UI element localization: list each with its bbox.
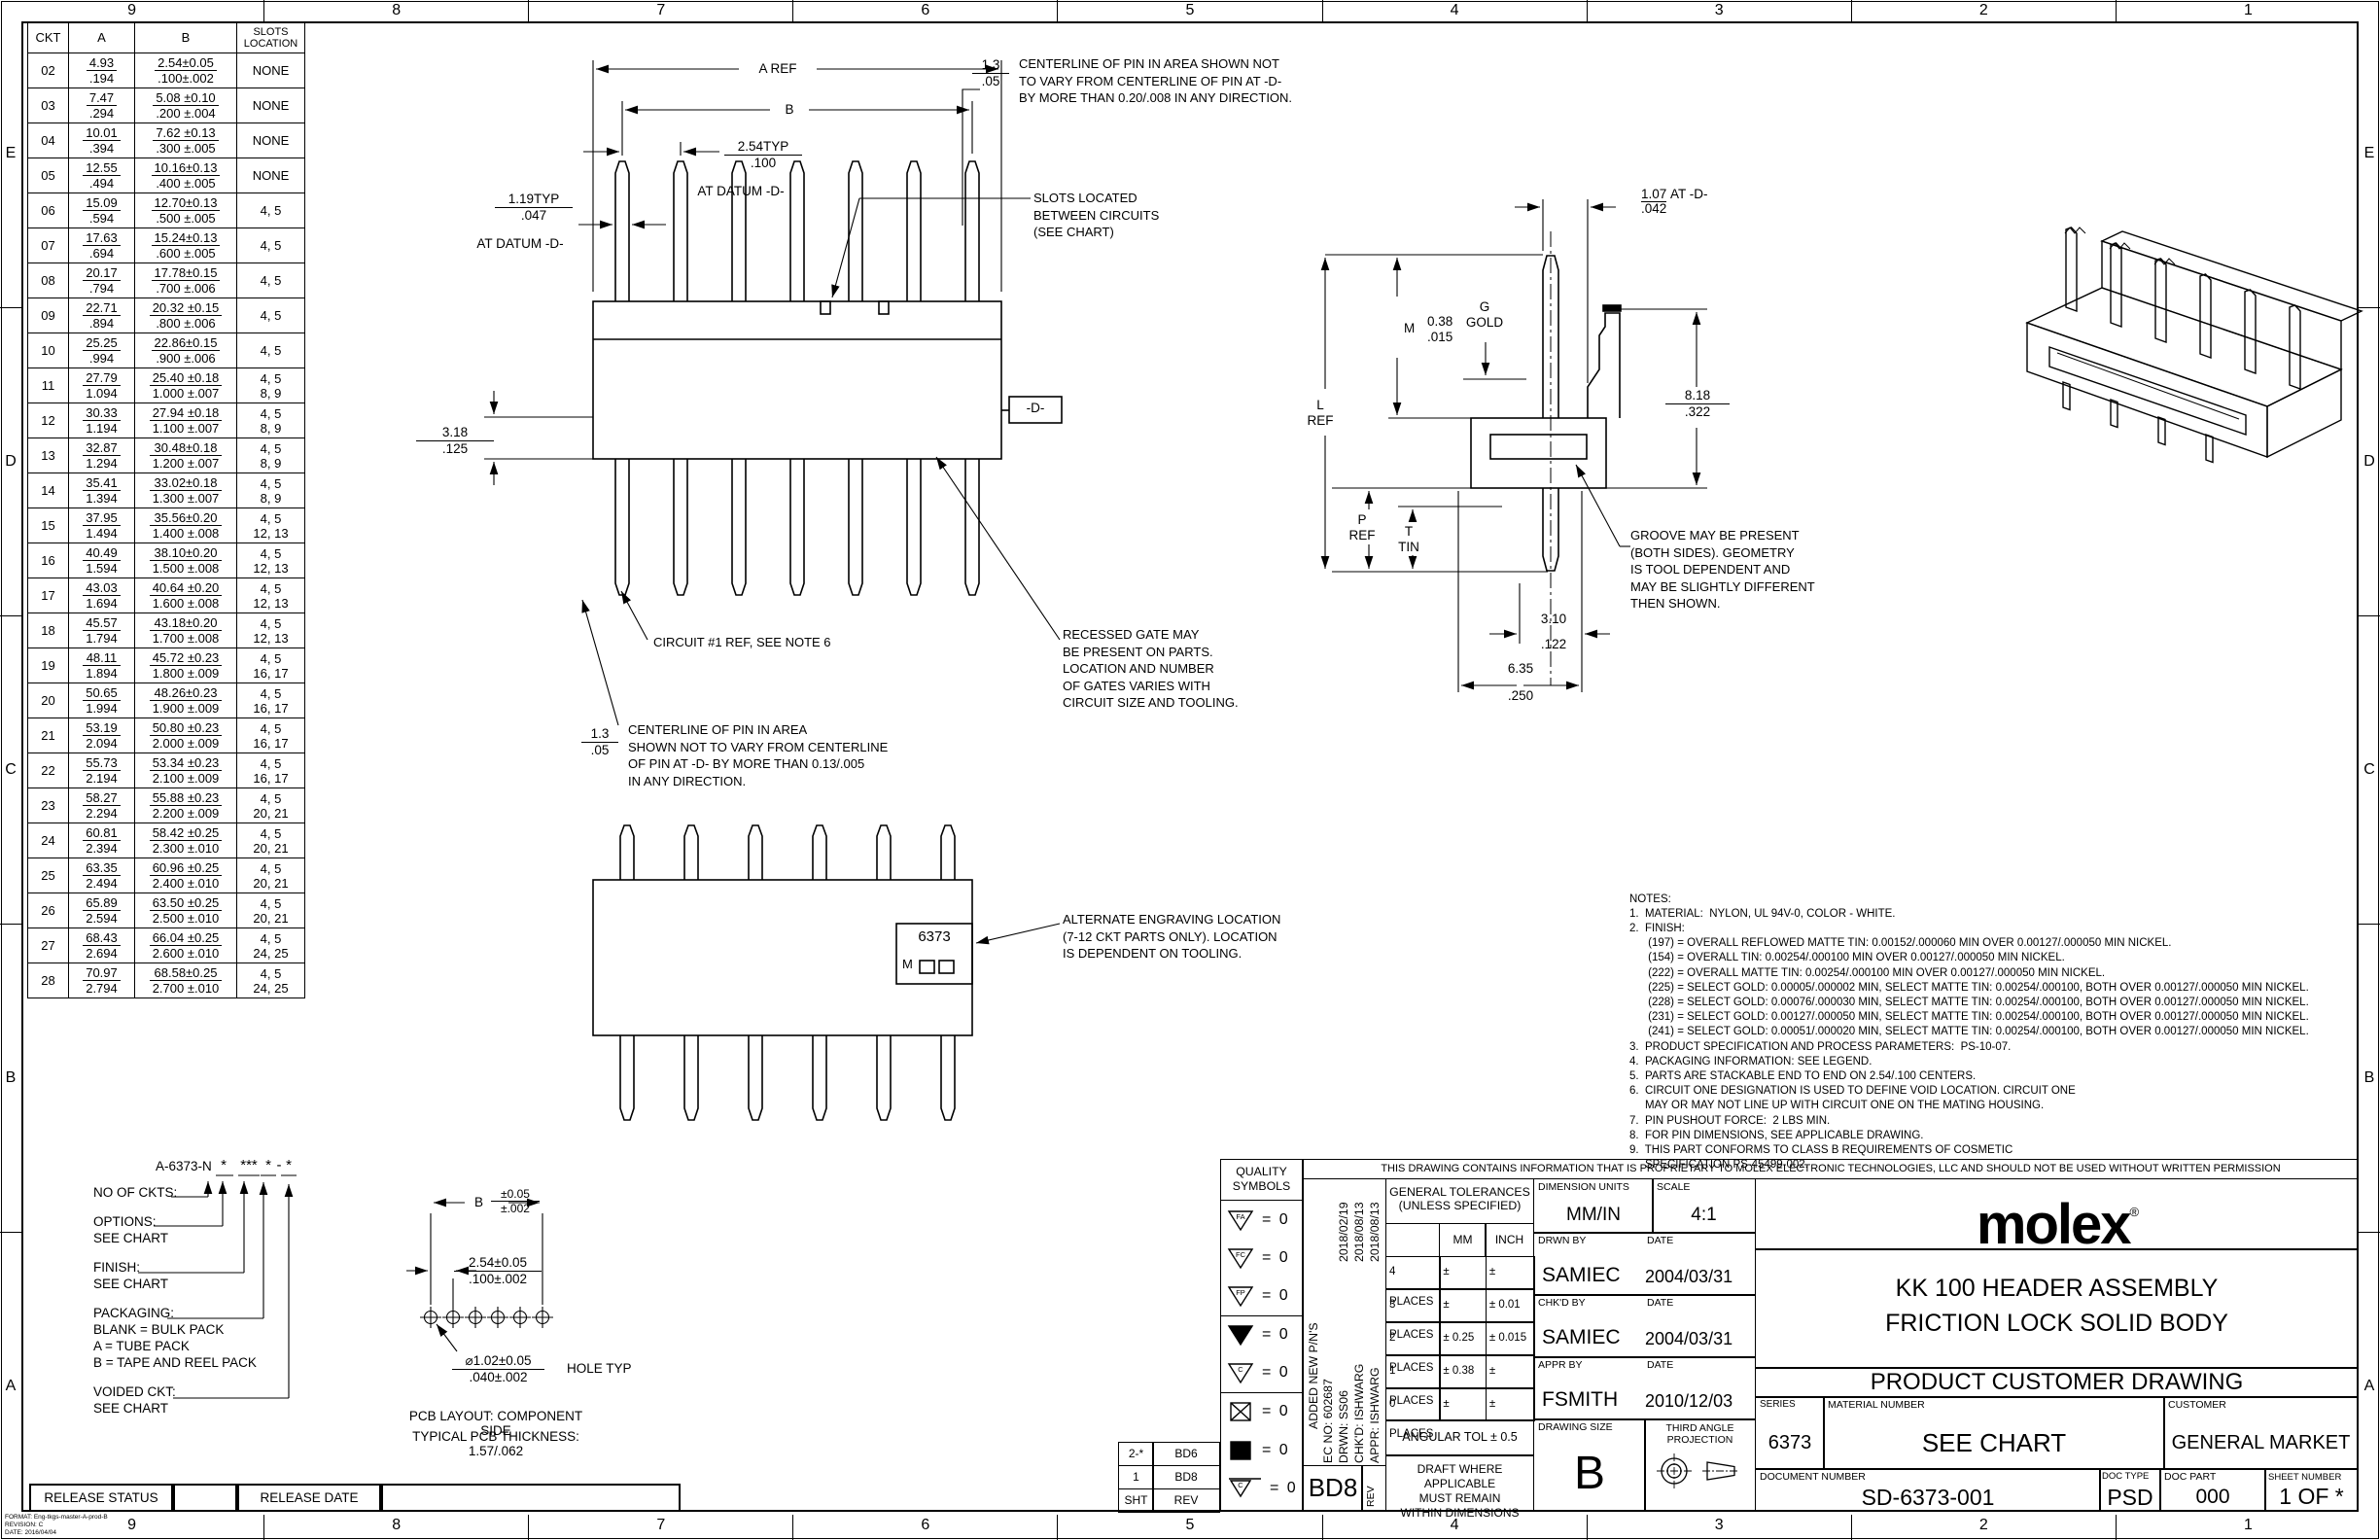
sheet-number-cell: SHEET NUMBER 1 OF * xyxy=(2264,1468,2359,1512)
tolerance-row: 3 PLACES ± ± 0.01 xyxy=(1385,1289,1535,1322)
material-number-cell: MATERIAL NUMBER SEE CHART xyxy=(1823,1396,2165,1470)
doc-part-value: 000 xyxy=(2160,1486,2265,1509)
rev-sht-header: SHT xyxy=(1118,1488,1154,1513)
tolerance-row: 4 PLACES ± ± xyxy=(1385,1256,1535,1289)
tol-col-inch: INCH xyxy=(1485,1223,1534,1257)
pcb-dim-pitch: 2.54±0.05 .100±.002 xyxy=(454,1255,542,1287)
projection-cell: THIRD ANGLE PROJECTION xyxy=(1644,1418,1756,1512)
dim-l-ref: L REF xyxy=(1295,398,1346,429)
quality-header: QUALITY SYMBOLS xyxy=(1221,1160,1302,1201)
release-date-cell: RELEASE DATE xyxy=(237,1484,381,1512)
legend-star-1: * xyxy=(216,1157,231,1173)
release-status-cell: RELEASE STATUS xyxy=(29,1484,173,1512)
drwn-by-label: DRWN BY xyxy=(1538,1235,1586,1246)
dim-tail-in: .125 xyxy=(416,441,494,457)
quality-row: FA = 0 xyxy=(1221,1201,1302,1240)
ec-drwn: DRWN: SS06 xyxy=(1337,1280,1350,1463)
marking-6373: 6373 xyxy=(898,928,970,945)
legend-item-sub: SEE CHART xyxy=(93,1276,317,1292)
quality-row: FC = 0 xyxy=(1221,1240,1302,1278)
quality-row: = 0 xyxy=(1221,1316,1302,1355)
note-line: (225) = SELECT GOLD: 0.00005/.000002 MIN… xyxy=(1629,981,2309,996)
legend-items: NO OF CKTS: OPTIONS: SEE CHART FINISH: S… xyxy=(93,1184,317,1429)
doc-type-label: DOC TYPE xyxy=(2102,1471,2149,1482)
c-triangle-bar-icon: C xyxy=(1226,1476,1263,1501)
ec-number: EC NO: 602687 xyxy=(1321,1280,1335,1463)
legend-item: FINISH: SEE CHART xyxy=(93,1259,317,1292)
dim-height-mm: 8.18 xyxy=(1665,388,1730,404)
legend-item-sub: SEE CHART xyxy=(93,1230,317,1246)
sheet-number-value: 1 OF * xyxy=(2266,1484,2357,1510)
drwn-date-value: 2004/03/31 xyxy=(1645,1267,1732,1287)
dim-slot-in: .122 xyxy=(1523,637,1584,651)
chkd-by-value: SAMIEC xyxy=(1542,1326,1621,1349)
tol-inch: ± 0.015 xyxy=(1486,1322,1535,1355)
rev-sht-cell: 2-* xyxy=(1118,1442,1154,1466)
tolerance-row: 0 PLACES ± ± xyxy=(1385,1388,1535,1421)
rev-rev-cell: BD6 xyxy=(1152,1442,1220,1466)
note-line: MAY OR MAY NOT LINE UP WITH CIRCUIT ONE … xyxy=(1629,1099,2309,1113)
note-line: 4. PACKAGING INFORMATION: SEE LEGEND. xyxy=(1629,1055,2309,1069)
customer-label: CUSTOMER xyxy=(2168,1399,2226,1411)
pcb-dim-b: B xyxy=(474,1195,483,1209)
tolerance-table: 4 PLACES ± ± 3 PLACES ± ± 0.01 2 PLACES … xyxy=(1385,1256,1535,1421)
document-number-value: SD-6373-001 xyxy=(1756,1485,2100,1511)
tolerance-header-2: (UNLESS SPECIFIED) xyxy=(1386,1199,1533,1212)
material-number-label: MATERIAL NUMBER xyxy=(1828,1399,1925,1411)
quality-row: = 0 xyxy=(1221,1393,1302,1432)
hole-symbols xyxy=(420,1307,553,1328)
tol-places: 2 PLACES xyxy=(1385,1322,1441,1355)
legend-item-label: NO OF CKTS: xyxy=(93,1184,317,1201)
dim-pitch-in: .100 xyxy=(724,156,802,171)
pcb-dim-hole: ⌀1.02±0.05 .040±.002 xyxy=(452,1353,544,1385)
legend-item: PACKAGING: BLANK = BULK PACK A = TUBE PA… xyxy=(93,1305,317,1371)
dim-pin-width-in: .047 xyxy=(495,208,573,224)
sheet-number-label: SHEET NUMBER xyxy=(2268,1472,2341,1483)
note-bottom-in: .05 xyxy=(581,743,618,758)
pcb-b-in: ±.002 xyxy=(491,1202,540,1215)
note-groove: GROOVE MAY BE PRESENT (BOTH SIDES). GEOM… xyxy=(1630,527,1835,612)
appr-date-label: DATE xyxy=(1647,1359,1673,1371)
document-number-label: DOCUMENT NUMBER xyxy=(1760,1471,1866,1483)
projection-label: THIRD ANGLE PROJECTION xyxy=(1645,1419,1755,1446)
ec-date-3: 2018/08/13 xyxy=(1368,1179,1382,1262)
drawing-size-value: B xyxy=(1534,1447,1645,1500)
front-view xyxy=(593,161,1062,595)
quality-value: = 0 xyxy=(1262,1211,1290,1229)
dim-base-mm: 6.35 xyxy=(1490,661,1551,676)
note-line: (228) = SELECT GOLD: 0.00076/.000030 MIN… xyxy=(1629,996,2309,1010)
rev-rev-header: REV xyxy=(1152,1488,1220,1513)
quality-value: = 0 xyxy=(1270,1480,1298,1497)
note-circuit1: CIRCUIT #1 REF, SEE NOTE 6 xyxy=(653,634,867,651)
tolerance-row: 2 PLACES ± 0.25 ± 0.015 xyxy=(1385,1322,1535,1355)
dim-tail: 3.18 .125 xyxy=(416,425,494,457)
proprietary-notice: THIS DRAWING CONTAINS INFORMATION THAT I… xyxy=(1303,1159,2359,1179)
quality-value: = 0 xyxy=(1262,1249,1290,1267)
quality-value: = 0 xyxy=(1262,1403,1290,1420)
svg-text:C: C xyxy=(1238,1365,1243,1374)
note-line: (154) = OVERALL TIN: 0.00254/.000100 MIN… xyxy=(1629,951,2309,965)
note-line: 6. CIRCUIT ONE DESIGNATION IS USED TO DE… xyxy=(1629,1084,2309,1099)
scale-value: 4:1 xyxy=(1653,1205,1755,1226)
tol-places: 3 PLACES xyxy=(1385,1289,1441,1322)
lower-view xyxy=(593,825,972,1120)
quality-value: = 0 xyxy=(1262,1287,1290,1305)
general-notes: NOTES:1. MATERIAL: NYLON, UL 94V-0, COLO… xyxy=(1629,848,2309,1172)
note-top-tolerance: 1.3 .05 xyxy=(972,57,1009,89)
dimension-units-label: DIMENSION UNITS xyxy=(1538,1181,1629,1193)
molex-logo: molex® xyxy=(1756,1179,2358,1258)
tol-inch: ± xyxy=(1486,1388,1535,1421)
datum-d-label: -D- xyxy=(1009,401,1062,415)
quality-row: C = 0 xyxy=(1221,1354,1302,1393)
customer-value: GENERAL MARKET xyxy=(2164,1432,2358,1454)
pcb-dim-b-tol: ±0.05 ±.002 xyxy=(491,1187,540,1215)
legend-star-2: *** xyxy=(235,1157,262,1173)
legend-item-label: PACKAGING: xyxy=(93,1305,317,1321)
tol-mm: ± xyxy=(1439,1388,1487,1421)
isometric-view xyxy=(2027,227,2362,463)
series-cell: SERIES 6373 xyxy=(1755,1396,1825,1470)
tol-places: 0 PLACES xyxy=(1385,1388,1441,1421)
note-alternate-engraving: ALTERNATE ENGRAVING LOCATION (7-12 CKT P… xyxy=(1063,911,1306,962)
note-line: 8. FOR PIN DIMENSIONS, SEE APPLICABLE DR… xyxy=(1629,1129,2309,1143)
dim-base-in: .250 xyxy=(1490,688,1551,703)
marking-m: M xyxy=(902,957,913,971)
drawing-title: KK 100 HEADER ASSEMBLY FRICTION LOCK SOL… xyxy=(1756,1249,2358,1341)
rev-code: BD8 xyxy=(1303,1465,1363,1512)
dim-b: B xyxy=(770,102,809,117)
rev-rev-cell: BD8 xyxy=(1152,1465,1220,1489)
scale-cell: SCALE 4:1 xyxy=(1652,1178,1756,1234)
ec-chkd: CHK'D: ISHWARG xyxy=(1352,1280,1366,1463)
legend-item-label: VOIDED CKT: xyxy=(93,1383,317,1400)
svg-text:FC: FC xyxy=(1236,1250,1246,1259)
quality-row: = 0 xyxy=(1221,1431,1302,1470)
note-bottom-tolerance: 1.3 .05 xyxy=(581,726,618,758)
series-value: 6373 xyxy=(1756,1432,1824,1454)
note-centerline-top: CENTERLINE OF PIN IN AREA SHOWN NOT TO V… xyxy=(1019,55,1349,107)
dim-g-gold: G GOLD xyxy=(1451,299,1519,331)
pcb-pitch-mm: 2.54±0.05 xyxy=(454,1255,542,1272)
legend-item: VOIDED CKT: SEE CHART xyxy=(93,1383,317,1417)
dimension-units-cell: DIMENSION UNITS MM/IN xyxy=(1533,1178,1654,1234)
title-cell: KK 100 HEADER ASSEMBLY FRICTION LOCK SOL… xyxy=(1755,1248,2359,1369)
pcb-hole-typ-label: HOLE TYP xyxy=(567,1361,632,1376)
footer-format: FORMAT: Eng-tkgs-master-A-prod-B xyxy=(5,1514,108,1522)
ec-appr: APPR: ISHWARG xyxy=(1368,1280,1382,1463)
note-line: 1. MATERIAL: NYLON, UL 94V-0, COLOR - WH… xyxy=(1629,907,2309,922)
dim-offset-mm: 1.07 xyxy=(1641,187,1666,202)
fc-triangle-icon: FC xyxy=(1226,1245,1255,1271)
third-angle-projection-icon xyxy=(1647,1448,1754,1492)
dimension-units-value: MM/IN xyxy=(1534,1205,1653,1226)
scale-label: SCALE xyxy=(1657,1181,1690,1193)
document-kind: PRODUCT CUSTOMER DRAWING xyxy=(1755,1367,2359,1398)
crossed-box-icon xyxy=(1226,1399,1255,1424)
doc-type-value: PSD xyxy=(2100,1485,2160,1511)
note-line: (222) = OVERALL MATTE TIN: 0.00254/.0001… xyxy=(1629,966,2309,981)
note-centerline-bottom: CENTERLINE OF PIN IN AREA SHOWN NOT TO V… xyxy=(628,721,929,789)
tolerance-header: GENERAL TOLERANCES (UNLESS SPECIFIED) xyxy=(1385,1178,1534,1224)
dim-pin-width: 1.19TYP .047 xyxy=(495,192,573,224)
logo-cell: molex® xyxy=(1755,1178,2359,1250)
note-line: 9. THIS PART CONFORMS TO CLASS B REQUIRE… xyxy=(1629,1143,2309,1158)
appr-by-label: APPR BY xyxy=(1538,1359,1583,1371)
legend-item-label: FINISH: xyxy=(93,1259,317,1276)
dim-offset: 1.07 AT -D- .042 xyxy=(1641,187,1708,216)
note-line: 3. PRODUCT SPECIFICATION AND PROCESS PAR… xyxy=(1629,1040,2309,1055)
drawing-title-2: FRICTION LOCK SOLID BODY xyxy=(1756,1306,2358,1341)
quality-value: = 0 xyxy=(1262,1326,1290,1344)
dim-offset-in: .042 xyxy=(1641,201,1708,216)
tol-mm: ± 0.25 xyxy=(1439,1322,1487,1355)
note-bottom-mm: 1.3 xyxy=(581,726,618,743)
tol-inch: ± xyxy=(1486,1355,1535,1388)
series-label: SERIES xyxy=(1760,1399,1796,1410)
chkd-by-label: CHK'D BY xyxy=(1538,1297,1586,1309)
dim-offset-datum: AT -D- xyxy=(1670,187,1708,201)
note-line: (231) = SELECT GOLD: 0.00127/.000050 MIN… xyxy=(1629,1010,2309,1025)
appr-by-cell: APPR BY DATE FSMITH 2010/12/03 xyxy=(1533,1356,1756,1420)
tol-mm: ± xyxy=(1439,1289,1487,1322)
pcb-pitch-in: .100±.002 xyxy=(454,1272,542,1287)
fp-triangle-icon: FP xyxy=(1226,1283,1255,1309)
appr-date-value: 2010/12/03 xyxy=(1645,1391,1732,1412)
pcb-layout-line2: TYPICAL PCB THICKNESS: 1.57/.062 xyxy=(389,1429,603,1458)
chkd-date-value: 2004/03/31 xyxy=(1645,1329,1732,1349)
fa-triangle-icon: FA xyxy=(1226,1207,1255,1233)
dim-m-letter: M xyxy=(1404,321,1415,335)
dim-pin-width-datum: AT DATUM -D- xyxy=(442,236,598,251)
dim-height-in: .322 xyxy=(1665,404,1730,420)
pcb-hole-mm: ⌀1.02±0.05 xyxy=(452,1353,544,1370)
svg-text:FP: FP xyxy=(1236,1288,1245,1297)
drawing-size-label: DRAWING SIZE xyxy=(1538,1421,1613,1433)
drawing-sheet: 987654321 987654321 EDCBA EDCBA CKT A B … xyxy=(0,0,2380,1540)
note-line: 5. PARTS ARE STACKABLE END TO END ON 2.5… xyxy=(1629,1069,2309,1084)
filled-box-icon xyxy=(1226,1438,1255,1463)
legend-item-sub: BLANK = BULK PACK A = TUBE PACK B = TAPE… xyxy=(93,1321,317,1371)
footer-revision: REVISION: C xyxy=(5,1522,108,1529)
pcb-b-mm: ±0.05 xyxy=(491,1187,540,1202)
legend-item: NO OF CKTS: xyxy=(93,1184,317,1201)
drawing-title-1: KK 100 HEADER ASSEMBLY xyxy=(1756,1271,2358,1306)
dim-pitch-mm: 2.54TYP xyxy=(724,139,802,156)
dim-p-ref: P REF xyxy=(1339,512,1385,543)
dim-slot-mm: 3.10 xyxy=(1523,612,1584,626)
note-slots: SLOTS LOCATED BETWEEN CIRCUITS (SEE CHAR… xyxy=(1033,190,1218,241)
dim-t-tin: T TIN xyxy=(1388,524,1429,555)
ec-date-2: 2018/08/13 xyxy=(1352,1179,1366,1262)
draft-note: DRAFT WHERE APPLICABLE MUST REMAIN WITHI… xyxy=(1385,1454,1534,1512)
document-number-cell: DOCUMENT NUMBER SD-6373-001 xyxy=(1755,1468,2101,1512)
note-recessed-gate: RECESSED GATE MAY BE PRESENT ON PARTS. L… xyxy=(1063,626,1267,712)
registered-mark: ® xyxy=(2130,1205,2138,1219)
note-line: NOTES: xyxy=(1629,892,2309,907)
tol-places: 4 PLACES xyxy=(1385,1256,1441,1289)
tolerance-row: 1 PLACES ± 0.38 ± xyxy=(1385,1355,1535,1388)
quality-row: C = 0 xyxy=(1221,1470,1302,1509)
chkd-date-label: DATE xyxy=(1647,1297,1673,1309)
drawing-size-cell: DRAWING SIZE B xyxy=(1533,1418,1646,1512)
angular-tolerance: ANGULAR TOL ± 0.5 xyxy=(1385,1419,1534,1456)
dim-tail-mm: 3.18 xyxy=(416,425,494,441)
chkd-by-cell: CHK'D BY DATE SAMIEC 2004/03/31 xyxy=(1533,1294,1756,1358)
material-number-value: SEE CHART xyxy=(1824,1428,2164,1458)
ec-change-desc: ADDED NEW P/N'S xyxy=(1307,1210,1320,1429)
legend-item: OPTIONS: SEE CHART xyxy=(93,1213,317,1246)
quality-value: = 0 xyxy=(1262,1364,1290,1382)
tolerance-header-1: GENERAL TOLERANCES xyxy=(1386,1185,1533,1199)
customer-cell: CUSTOMER GENERAL MARKET xyxy=(2163,1396,2359,1470)
note-line: (197) = OVERALL REFLOWED MATTE TIN: 0.00… xyxy=(1629,936,2309,951)
dim-height: 8.18 .322 xyxy=(1665,388,1730,420)
legend-part-number: A-6373-N xyxy=(156,1159,212,1173)
legend-item-sub: SEE CHART xyxy=(93,1400,317,1417)
lower-view-leaders xyxy=(976,924,1060,943)
section-view-dims xyxy=(1325,199,1707,692)
tol-places: 1 PLACES xyxy=(1385,1355,1441,1388)
quality-row: FP = 0 xyxy=(1221,1277,1302,1316)
c-triangle-icon: C xyxy=(1226,1360,1255,1385)
legend-item-label: OPTIONS: xyxy=(93,1213,317,1230)
tol-inch: ± 0.01 xyxy=(1486,1289,1535,1322)
tol-mm: ± xyxy=(1439,1256,1487,1289)
dim-pin-width-mm: 1.19TYP xyxy=(495,192,573,208)
appr-by-value: FSMITH xyxy=(1542,1388,1618,1412)
note-top-mm: 1.3 xyxy=(972,57,1009,74)
release-status-value-cell xyxy=(173,1484,237,1512)
svg-text:C: C xyxy=(1238,1481,1243,1489)
pcb-hole-in: .040±.002 xyxy=(452,1370,544,1385)
rev-label: REV xyxy=(1365,1468,1377,1507)
footer-date: DATE: 2016/04/04 xyxy=(5,1529,108,1537)
drwn-by-cell: DRWN BY DATE SAMIEC 2004/03/31 xyxy=(1533,1232,1756,1296)
doc-part-label: DOC PART xyxy=(2164,1471,2216,1483)
release-date-value-cell xyxy=(381,1484,681,1512)
svg-text:FA: FA xyxy=(1236,1212,1244,1221)
dim-a-ref: A REF xyxy=(739,61,817,76)
rev-sht-cell: 1 xyxy=(1118,1465,1154,1489)
ec-date-1: 2018/02/19 xyxy=(1337,1179,1350,1262)
note-line: (241) = SELECT GOLD: 0.00051/.000020 MIN… xyxy=(1629,1025,2309,1039)
legend-star-4: * xyxy=(281,1157,297,1173)
note-line: 2. FINISH: xyxy=(1629,922,2309,936)
drwn-date-label: DATE xyxy=(1647,1235,1673,1246)
quality-value: = 0 xyxy=(1262,1442,1290,1459)
dim-m-values: 0.38 .015 xyxy=(1427,314,1452,345)
drwn-by-value: SAMIEC xyxy=(1542,1264,1621,1287)
note-line: 7. PIN PUSHOUT FORCE: 2 LBS MIN. xyxy=(1629,1114,2309,1129)
dim-pitch-datum: AT DATUM -D- xyxy=(663,184,819,198)
doc-part-cell: DOC PART 000 xyxy=(2159,1468,2266,1512)
sheet-footer: FORMAT: Eng-tkgs-master-A-prod-B REVISIO… xyxy=(5,1514,108,1537)
dim-pitch: 2.54TYP .100 xyxy=(724,139,802,171)
note-top-in: .05 xyxy=(972,74,1009,89)
tol-col-mm: MM xyxy=(1439,1223,1487,1257)
tol-inch: ± xyxy=(1486,1256,1535,1289)
quality-symbols-column: QUALITY SYMBOLS FA = 0 FC = 0 FP = 0 = 0… xyxy=(1220,1159,1303,1512)
doc-type-cell: DOC TYPE PSD xyxy=(2099,1468,2161,1512)
tol-mm: ± 0.38 xyxy=(1439,1355,1487,1388)
filled-triangle-icon xyxy=(1226,1322,1255,1347)
